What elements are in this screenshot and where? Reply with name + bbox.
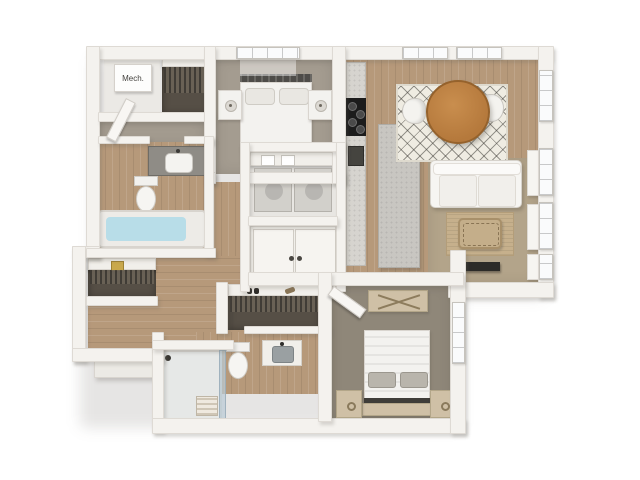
bed2-dresser	[368, 290, 428, 312]
window-bedroom2	[452, 302, 465, 364]
coffee-table-carving	[463, 223, 499, 246]
shoes-icon	[254, 288, 259, 294]
bed2-nightstand-left	[336, 390, 362, 418]
wall-exterior-left-upper	[86, 46, 100, 258]
laundry-basket	[261, 155, 275, 166]
bathtub-water	[106, 217, 186, 241]
window-living-2	[539, 202, 553, 250]
mech-closet-label: Mech.	[114, 64, 152, 92]
sofa-seat-cushion	[439, 175, 477, 207]
bed2-pillow-right	[400, 372, 428, 388]
window-right-upper	[539, 70, 553, 122]
bath1-sink	[165, 153, 193, 173]
shower-glass-panel	[219, 350, 226, 422]
wall-shower-top	[152, 340, 234, 350]
bath1-bathtub	[98, 210, 206, 248]
wall-exterior-bottom	[152, 418, 466, 434]
bath1-toilet-bowl	[136, 186, 156, 212]
bed2-headboard	[362, 403, 432, 416]
wall-laundry-top	[240, 142, 346, 152]
closet1-hanging-clothes	[164, 67, 208, 93]
window-living-1	[539, 148, 553, 196]
door-knob-icon	[289, 256, 294, 261]
burner-icon	[348, 118, 357, 127]
burner-icon	[356, 125, 365, 134]
bath1-vanity	[148, 146, 206, 176]
showerhead-icon	[165, 355, 171, 361]
laundry-basket	[281, 155, 295, 166]
wall-exterior-left-lower	[72, 246, 86, 362]
lamp-icon	[315, 100, 327, 112]
wall-coat-closet-bottom	[86, 296, 158, 306]
bed1-nightstand-right	[308, 90, 332, 120]
bath2-sink	[272, 346, 294, 363]
washer-door-icon	[265, 182, 283, 200]
closet2-hanging-clothes	[230, 296, 318, 312]
window-living-3	[539, 254, 553, 280]
sofa	[430, 160, 522, 208]
dryer-door-icon	[305, 182, 323, 200]
bed1-nightstand-left	[218, 90, 242, 120]
wall-closet2-left	[216, 282, 228, 334]
floor-plan-3d: Mech.	[0, 0, 640, 480]
dining-chair-left	[402, 98, 426, 124]
burner-icon	[348, 102, 357, 111]
shower-bench-slats	[196, 396, 218, 416]
bath2-toilet-bowl	[228, 352, 248, 379]
lamp-icon	[225, 100, 237, 112]
window-bedroom1	[236, 47, 300, 59]
bath1-toilet-tank	[134, 176, 158, 186]
sofa-seat-cushion	[478, 175, 516, 207]
sofa-back-cushion	[433, 163, 521, 175]
coat-closet-clothes	[90, 270, 154, 284]
wall-entry-bottom	[72, 348, 164, 362]
knob-icon	[441, 402, 450, 411]
bed1-pillow-right	[279, 88, 309, 105]
bed1-pillow-left	[245, 88, 275, 105]
wall-bedroom1-bottom-b	[244, 172, 346, 184]
faucet-icon	[176, 149, 180, 153]
kitchen-sink	[348, 146, 364, 166]
wall-bath1-right	[204, 136, 214, 256]
window-light-spill	[240, 60, 296, 76]
dining-table	[426, 80, 490, 144]
wall-main-divider	[248, 272, 464, 286]
wall-bath1-bottom	[86, 248, 216, 258]
mech-closet-text: Mech.	[122, 74, 144, 83]
wall-laundry-divider	[248, 216, 338, 226]
bath2-vanity	[262, 340, 302, 366]
entry-stoop	[94, 360, 158, 378]
door-knob-icon	[297, 256, 302, 261]
clutch-icon	[284, 286, 295, 294]
burner-icon	[356, 110, 365, 119]
coat-closet-shelf	[88, 258, 156, 270]
laundry-counter	[250, 152, 336, 166]
window-kitchen-1	[402, 47, 448, 59]
bed2-mattress	[364, 330, 430, 402]
bed2-pillow-left	[368, 372, 396, 388]
knob-icon	[347, 402, 356, 411]
coffee-table	[458, 218, 502, 249]
faucet-icon	[280, 342, 284, 346]
window-kitchen-2	[456, 47, 502, 59]
kitchen-range	[346, 98, 366, 136]
